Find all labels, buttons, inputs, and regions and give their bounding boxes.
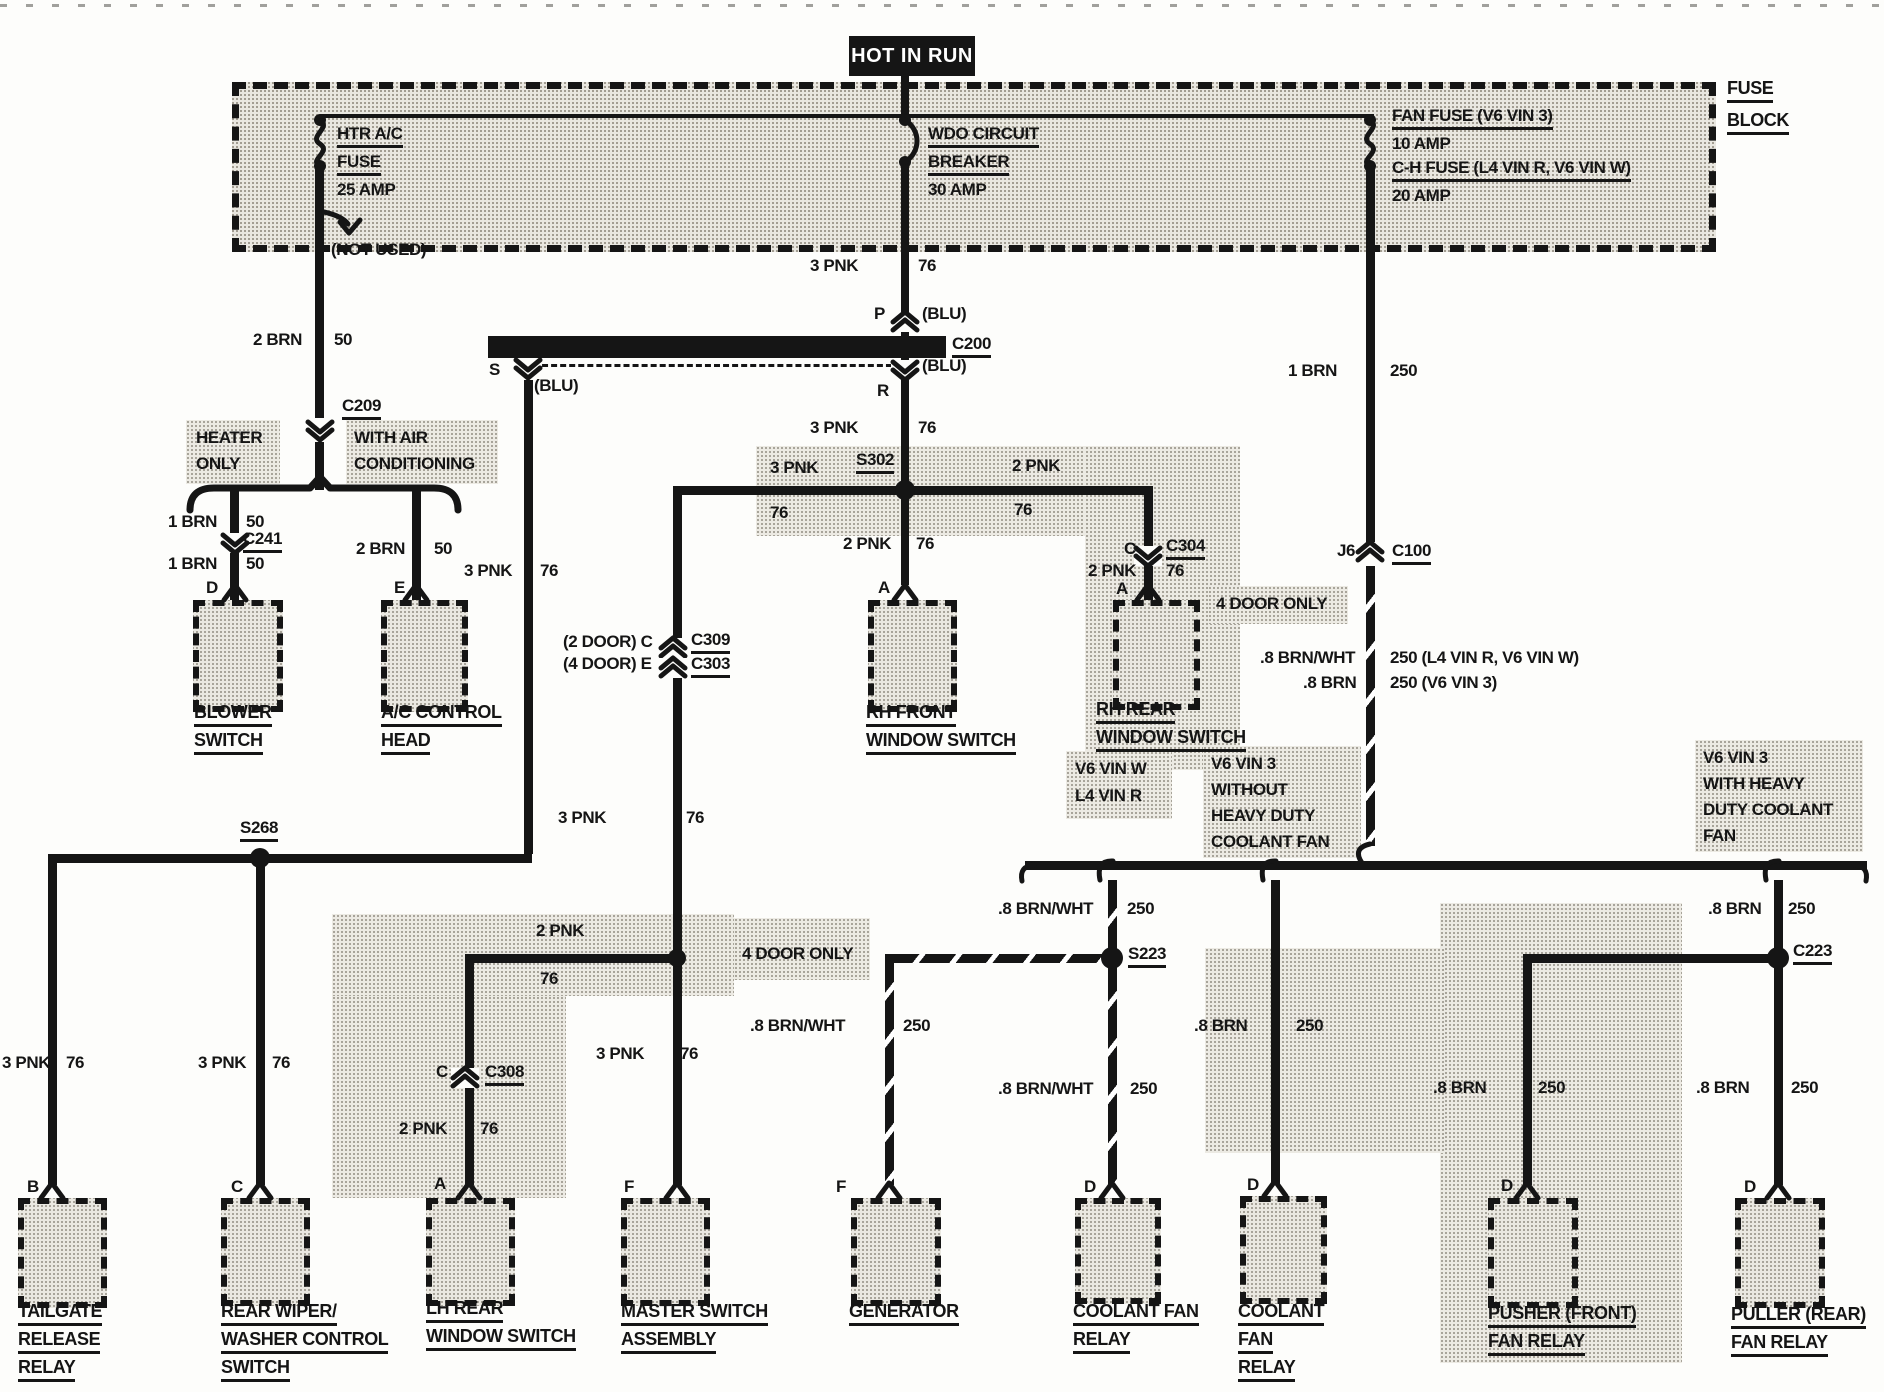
bus-drop-curl-s223	[1099, 861, 1113, 880]
component-label-coolant2-3: RELAY	[1238, 1357, 1295, 1382]
component-label-tailgate-3: RELAY	[18, 1357, 75, 1382]
fuse-block-label-2: BLOCK	[1727, 110, 1789, 135]
component-label-achead-2: HEAD	[381, 730, 430, 755]
note-2-door-pin: (2 DOOR) C	[563, 632, 653, 652]
component-label-wiper-1: REAR WIPER/	[221, 1301, 337, 1326]
component-label-generator: GENERATOR	[849, 1301, 959, 1326]
note-v6-3-without-2: WITHOUT	[1211, 780, 1288, 800]
component-label-master-1: MASTER SWITCH	[621, 1301, 768, 1326]
note-v6-3-without-1: V6 VIN 3	[1211, 754, 1276, 774]
not-used-arrow	[340, 220, 360, 233]
htr-ac-fuse-rating: 25 AMP	[337, 180, 395, 200]
label-250-l4-vin-r-v6-vin-w: 250 (L4 VIN R, V6 VIN W)	[1390, 648, 1579, 668]
label-76: 76	[1014, 500, 1032, 520]
component-label-tailgate-2: RELEASE	[18, 1329, 100, 1354]
component-label-rhrear-1: RH REAR	[1096, 699, 1175, 724]
note-v6-3-with-3: DUTY COOLANT	[1703, 800, 1833, 820]
component-label-achead-1: A/C CONTROL	[381, 702, 502, 727]
pin-label-rh-front-a: A	[878, 578, 890, 598]
label-76: 76	[770, 503, 788, 523]
label-8-brn: .8 BRN	[1194, 1016, 1247, 1036]
component-label-rhfront-2: WINDOW SWITCH	[866, 730, 1016, 755]
pin-label-tailgate-b: B	[27, 1177, 39, 1197]
label-3-pnk: 3 PNK	[810, 418, 858, 438]
component-label-lhrear-2: WINDOW SWITCH	[426, 1326, 576, 1351]
color-tag-r: (BLU)	[922, 356, 966, 376]
connector-label-c100: C100	[1392, 541, 1431, 565]
label-50: 50	[434, 539, 452, 559]
label-76: 76	[686, 808, 704, 828]
component-label-blower-2: SWITCH	[194, 730, 263, 755]
component-label-rhrear-2: WINDOW SWITCH	[1096, 727, 1246, 752]
hot-in-run-tag: HOT IN RUN	[849, 36, 975, 76]
component-label-pusher-2: FAN RELAY	[1488, 1331, 1585, 1356]
bus-drop-curl-coolant2	[1262, 861, 1276, 880]
pin-blower-d	[224, 585, 246, 600]
pin-lh-rear-a	[458, 1183, 480, 1198]
label-8-brn-wht: .8 BRN/WHT	[998, 899, 1093, 919]
pin-label-c200-p: P	[874, 304, 885, 324]
component-label-master-2: ASSEMBLY	[621, 1329, 716, 1354]
label-3-pnk: 3 PNK	[558, 808, 606, 828]
component-label-tailgate-1: TAILGATE	[18, 1301, 102, 1326]
component-label-puller-1: PULLER (REAR)	[1731, 1304, 1866, 1329]
pin-rh-rear-a	[1137, 585, 1159, 600]
connector-label-c241: C241	[243, 529, 282, 553]
component-label-coolant2-1: COOLANT	[1238, 1301, 1324, 1326]
note-heater-only-1: HEATER	[196, 428, 262, 448]
pin-rh-front-a	[894, 585, 916, 600]
pin-coolant2-d	[1264, 1181, 1286, 1196]
splice-label-s223: S223	[1128, 944, 1166, 968]
label-76: 76	[272, 1053, 290, 1073]
component-label-lhrear-1: LH REAR	[426, 1298, 503, 1323]
label-2-pnk: 2 PNK	[399, 1119, 447, 1139]
label-76: 76	[918, 418, 936, 438]
label-3-pnk: 3 PNK	[198, 1053, 246, 1073]
label-250: 250	[1538, 1078, 1565, 1098]
pin-wiper-c	[249, 1183, 271, 1198]
component-label-puller-2: FAN RELAY	[1731, 1332, 1828, 1357]
wdo-breaker-name-1: WDO CIRCUIT	[928, 124, 1039, 148]
note-4-door-pin: (4 DOOR) E	[563, 654, 652, 674]
label-8-brn: .8 BRN	[1303, 673, 1356, 693]
pin-master-f	[666, 1183, 688, 1198]
ch-fuse-rating: 20 AMP	[1392, 186, 1450, 206]
label-250: 250	[1788, 899, 1815, 919]
pin-label-generator-f: F	[836, 1177, 846, 1197]
note-with-ac-2: CONDITIONING	[354, 454, 475, 474]
fuse-block-label-1: FUSE	[1727, 78, 1773, 103]
htr-ac-fuse-symbol	[317, 120, 324, 166]
pin-tailgate-b	[41, 1183, 63, 1198]
wdo-breaker-rating: 30 AMP	[928, 180, 986, 200]
label-8-brn: .8 BRN	[1708, 899, 1761, 919]
note-v6-3-without-4: COOLANT FAN	[1211, 832, 1329, 852]
label-1-brn: 1 BRN	[1288, 361, 1337, 381]
color-tag-s: (BLU)	[534, 376, 578, 396]
label-2-brn: 2 BRN	[253, 330, 302, 350]
connector-label-c309: C309	[691, 630, 730, 654]
pin-label-wiper-c: C	[231, 1177, 243, 1197]
connector-label-c223: C223	[1793, 941, 1832, 965]
pin-label-coolant2-d: D	[1247, 1175, 1259, 1195]
note-v6w-l4r-2: L4 VIN R	[1075, 786, 1142, 806]
component-label-pusher-1: PUSHER (FRONT)	[1488, 1303, 1636, 1328]
label-3-pnk: 3 PNK	[464, 561, 512, 581]
label-2-pnk: 2 PNK	[1012, 456, 1060, 476]
component-label-coolant2-2: FAN	[1238, 1329, 1273, 1354]
note-v6-3-with-1: V6 VIN 3	[1703, 748, 1768, 768]
splice-label-s302: S302	[856, 450, 894, 474]
pin-ac-head-e	[405, 585, 427, 600]
label-76: 76	[916, 534, 934, 554]
label-76: 76	[680, 1044, 698, 1064]
bus-end-left	[1022, 865, 1035, 881]
label-8-brn: .8 BRN	[1696, 1078, 1749, 1098]
connector-label-c308: C308	[485, 1062, 524, 1086]
wiring-diagram-canvas: HOT IN RUN FUSEBLOCKHTR A/CFUSE25 AMPWDO…	[0, 0, 1884, 1392]
label-250: 250	[1791, 1078, 1818, 1098]
connector-label-c200: C200	[952, 334, 991, 358]
color-tag-p: (BLU)	[922, 304, 966, 324]
pin-label-master-f: F	[624, 1177, 634, 1197]
label-50: 50	[334, 330, 352, 350]
pin-pusher-d	[1516, 1183, 1538, 1198]
fan-fuse-rating: 10 AMP	[1392, 134, 1450, 154]
pin-label-puller-d: D	[1744, 1177, 1756, 1197]
pin-label-c200-r: R	[877, 381, 889, 401]
note-v6w-l4r-1: V6 VIN W	[1075, 759, 1146, 779]
component-label-coolant1-1: COOLANT FAN	[1073, 1301, 1199, 1326]
pin-puller-d	[1767, 1183, 1789, 1198]
label-8-brn-wht: .8 BRN/WHT	[1260, 648, 1355, 668]
note-v6-3-with-2: WITH HEAVY	[1703, 774, 1804, 794]
note-v6-3-without-3: HEAVY DUTY	[1211, 806, 1315, 826]
label-1-brn: 1 BRN	[168, 554, 217, 574]
label-3-pnk: 3 PNK	[596, 1044, 644, 1064]
htr-ac-fuse-name-2: FUSE	[337, 152, 381, 176]
component-label-coolant1-2: RELAY	[1073, 1329, 1130, 1354]
pin-label-coolant1-d: D	[1084, 1177, 1096, 1197]
wdo-breaker-name-2: BREAKER	[928, 152, 1009, 176]
pin-label-c304-c: C	[1124, 539, 1136, 559]
label-2-pnk: 2 PNK	[1088, 561, 1136, 581]
label-8-brn-wht: .8 BRN/WHT	[750, 1016, 845, 1036]
not-used-tag: (NOT USED)	[331, 240, 426, 260]
label-250: 250	[1130, 1079, 1157, 1099]
fan-fuse-name: FAN FUSE (V6 VIN 3)	[1392, 106, 1553, 130]
splice-label-s268: S268	[240, 818, 278, 842]
htr-ac-fuse-name-1: HTR A/C	[337, 124, 403, 148]
label-76: 76	[1166, 561, 1184, 581]
note-4-door-only-2: 4 DOOR ONLY	[742, 944, 853, 964]
pin-label-c308-c: C	[436, 1062, 448, 1082]
pin-label-blower-d: D	[206, 578, 218, 598]
pin-label-lh-rear-a: A	[434, 1174, 446, 1194]
pin-label-c200-s: S	[489, 360, 500, 380]
bus-drop-curl-c223	[1765, 861, 1779, 880]
label-1-brn: 1 BRN	[168, 512, 217, 532]
component-label-wiper-3: SWITCH	[221, 1357, 290, 1382]
label-3-pnk: 3 PNK	[810, 256, 858, 276]
pin-generator-f	[878, 1183, 900, 1198]
pin-label-j6: J6	[1337, 541, 1355, 561]
label-8-brn-wht: .8 BRN/WHT	[998, 1079, 1093, 1099]
note-with-ac-1: WITH AIR	[354, 428, 428, 448]
pin-coolant1-d	[1101, 1183, 1123, 1198]
label-76: 76	[480, 1119, 498, 1139]
label-2-pnk: 2 PNK	[536, 921, 584, 941]
label-250: 250	[1390, 361, 1417, 381]
connector-label-c209: C209	[342, 396, 381, 420]
note-4-door-only-1: 4 DOOR ONLY	[1216, 594, 1327, 614]
note-heater-only-2: ONLY	[196, 454, 240, 474]
label-250-v6-vin-3: 250 (V6 VIN 3)	[1390, 673, 1497, 693]
note-v6-3-with-4: FAN	[1703, 826, 1736, 846]
label-76: 76	[540, 561, 558, 581]
component-label-wiper-2: WASHER CONTROL	[221, 1329, 388, 1354]
ch-fuse-name: C-H FUSE (L4 VIN R, V6 VIN W)	[1392, 158, 1631, 182]
label-250: 250	[1127, 899, 1154, 919]
bus-end-right	[1854, 865, 1867, 881]
symbol-overlay	[0, 0, 1884, 1392]
not-used-stub	[324, 212, 348, 224]
label-76: 76	[540, 969, 558, 989]
pin-label-pusher-d: D	[1501, 1176, 1513, 1196]
pin-label-rh-rear-a: A	[1116, 579, 1128, 599]
label-3-pnk: 3 PNK	[2, 1053, 50, 1073]
label-76: 76	[918, 256, 936, 276]
split-bracket	[190, 477, 458, 510]
connector-label-c304: C304	[1166, 536, 1205, 560]
connector-label-c303: C303	[691, 654, 730, 678]
fan-ch-fuse-symbol	[1367, 120, 1374, 166]
bus-feed-curl-c100	[1358, 844, 1370, 863]
label-2-pnk: 2 PNK	[843, 534, 891, 554]
component-label-blower-1: BLOWER	[194, 702, 272, 727]
component-label-rhfront-1: RH FRONT	[866, 702, 956, 727]
label-250: 250	[1296, 1016, 1323, 1036]
label-8-brn: .8 BRN	[1433, 1078, 1486, 1098]
label-76: 76	[66, 1053, 84, 1073]
label-2-brn: 2 BRN	[356, 539, 405, 559]
label-50: 50	[246, 554, 264, 574]
hot-in-run-label: HOT IN RUN	[851, 45, 973, 68]
pin-label-ac-e: E	[394, 578, 405, 598]
label-250: 250	[903, 1016, 930, 1036]
label-3-pnk: 3 PNK	[770, 458, 818, 478]
wdo-circuit-breaker-symbol	[905, 120, 917, 162]
